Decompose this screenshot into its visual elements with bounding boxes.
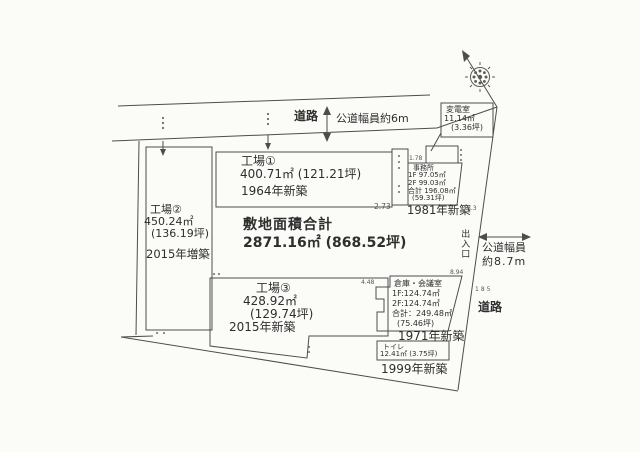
road-top-upper-edge bbox=[118, 95, 430, 106]
dimension-8-3: 8.3 bbox=[467, 205, 477, 213]
substation-tsubo: (3.36坪) bbox=[451, 123, 483, 133]
dimension-2-73: 2.73 bbox=[374, 202, 391, 211]
dimension-185: 185 bbox=[475, 286, 492, 294]
boundary-corner-arrow-mid bbox=[265, 135, 271, 150]
site-plan-page: 道路 公道幅員約6m 工場① 400.71㎡ (121.21坪) 1964年新築… bbox=[0, 0, 640, 452]
site-total-label: 敷地面積合計 bbox=[243, 217, 333, 235]
road-top-label: 道路 bbox=[294, 109, 318, 124]
road-top-width-note: 公道幅員約6m bbox=[336, 112, 409, 126]
road-right-width-note-2: 約8.7m bbox=[482, 255, 526, 269]
boundary-west bbox=[136, 141, 139, 335]
factory1-built: 1964年新築 bbox=[241, 184, 308, 199]
entrance-label: 出入口 bbox=[458, 229, 469, 265]
dimension-4-48: 4.48 bbox=[361, 279, 374, 287]
warehouse-name: 倉庫・会議室 bbox=[394, 279, 442, 289]
road-right-label: 道路 bbox=[478, 300, 502, 315]
boundary-arrowhead bbox=[462, 50, 470, 62]
warehouse-built: 1971年新築 bbox=[398, 329, 465, 344]
dimension-1-78: 1.78 bbox=[409, 155, 422, 163]
warehouse-floor1: 1F:124.74㎡ bbox=[392, 289, 440, 299]
boundary-corner-arrow-left bbox=[160, 141, 166, 156]
road-top-lower-edge bbox=[112, 128, 437, 141]
office-built: 1981年新築 bbox=[407, 203, 471, 217]
annex-strip-outline bbox=[392, 149, 408, 205]
dimension-8-94: 8.94 bbox=[450, 269, 463, 277]
factory2-tsubo: (136.19坪) bbox=[151, 227, 209, 241]
boundary-southwest-jog bbox=[121, 336, 153, 337]
toilet-area: 12.41㎡ (3.75坪) bbox=[380, 350, 437, 359]
road-width-arrow-top bbox=[323, 106, 331, 142]
toilet-built: 1999年新築 bbox=[381, 362, 448, 377]
factory1-area: 400.71㎡ (121.21坪) bbox=[240, 167, 361, 182]
warehouse-floor2: 2F:124.74㎡ bbox=[392, 299, 440, 309]
factory3-built: 2015年新築 bbox=[229, 320, 296, 335]
utility-pole-icon bbox=[465, 62, 495, 92]
substation-leader-line bbox=[431, 133, 441, 151]
warehouse-tsubo: (75.46坪) bbox=[397, 319, 434, 329]
substation-outline bbox=[426, 146, 458, 163]
road-width-arrow-right bbox=[478, 233, 531, 241]
office-tsubo: (59.31坪) bbox=[412, 194, 445, 203]
site-total-value: 2871.16㎡ (868.52坪) bbox=[243, 235, 406, 253]
factory2-built: 2015年増築 bbox=[146, 247, 210, 261]
road-right-width-note-1: 公道幅員 bbox=[482, 241, 526, 255]
boundary-pole-line bbox=[465, 55, 497, 107]
warehouse-total: 合計：249.48㎡ bbox=[392, 309, 452, 319]
